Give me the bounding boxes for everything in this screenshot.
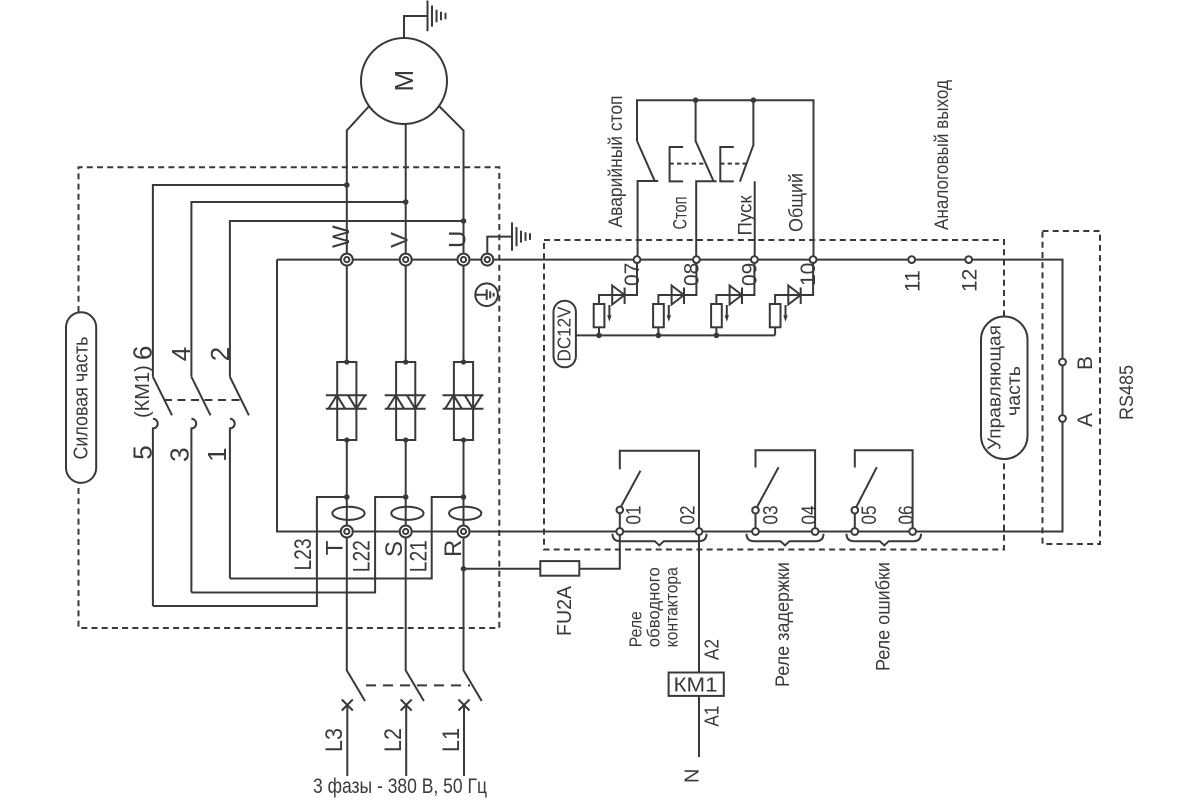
svg-text:V: V: [387, 232, 414, 248]
svg-text:U: U: [445, 231, 472, 248]
svg-text:01: 01: [623, 506, 646, 525]
svg-text:6: 6: [128, 346, 158, 360]
svg-text:L2: L2: [380, 728, 407, 752]
svg-text:10: 10: [797, 263, 820, 286]
svg-text:3 фазы - 380 В, 50 Гц: 3 фазы - 380 В, 50 Гц: [313, 775, 487, 798]
svg-text:L3: L3: [321, 728, 348, 752]
svg-text:RS485: RS485: [1117, 365, 1138, 420]
svg-text:12: 12: [959, 269, 982, 292]
svg-text:04: 04: [798, 505, 821, 524]
svg-text:Общий: Общий: [787, 173, 808, 232]
svg-text:05: 05: [858, 506, 881, 525]
svg-text:1: 1: [202, 447, 232, 461]
svg-text:3: 3: [165, 447, 195, 461]
svg-text:03: 03: [760, 506, 783, 525]
svg-text:07: 07: [621, 263, 644, 286]
svg-text:09: 09: [738, 263, 761, 286]
svg-text:2: 2: [205, 347, 235, 361]
svg-text:(КМ1): (КМ1): [132, 365, 154, 418]
svg-text:Пуск: Пуск: [736, 195, 757, 236]
svg-text:W: W: [328, 225, 355, 248]
svg-text:часть: часть: [1004, 366, 1025, 416]
svg-text:Аналоговый выход: Аналоговый выход: [932, 80, 953, 230]
svg-text:T: T: [322, 540, 349, 555]
svg-text:08: 08: [680, 263, 703, 286]
svg-text:Стоп: Стоп: [671, 197, 692, 230]
svg-text:L1: L1: [438, 728, 465, 752]
svg-text:Реле задержки: Реле задержки: [772, 562, 794, 687]
svg-text:M: M: [389, 70, 419, 92]
svg-text:A2: A2: [701, 639, 723, 660]
svg-text:L23: L23: [290, 539, 317, 571]
svg-text:L21: L21: [406, 540, 433, 572]
svg-text:A1: A1: [701, 706, 723, 727]
svg-text:4: 4: [166, 347, 196, 361]
svg-text:FU2A: FU2A: [554, 585, 576, 636]
svg-text:B: B: [1074, 356, 1097, 370]
svg-text:N: N: [682, 769, 704, 783]
svg-text:Реле ошибки: Реле ошибки: [873, 562, 895, 671]
svg-text:контактора: контактора: [662, 567, 682, 647]
svg-text:Управляющая: Управляющая: [985, 325, 1005, 450]
svg-text:КМ1: КМ1: [674, 675, 718, 697]
svg-text:L22: L22: [349, 540, 376, 572]
svg-text:Реле: Реле: [626, 611, 646, 647]
svg-text:S: S: [381, 541, 408, 557]
svg-text:DC12V: DC12V: [555, 307, 575, 362]
svg-text:02: 02: [677, 506, 700, 525]
svg-text:обводного: обводного: [644, 567, 664, 647]
svg-text:11: 11: [902, 270, 925, 292]
svg-text:A: A: [1074, 413, 1097, 427]
svg-text:Силовая часть: Силовая часть: [71, 337, 93, 460]
svg-text:5: 5: [128, 445, 158, 459]
svg-text:06: 06: [895, 506, 918, 525]
svg-text:Аварийный стоп: Аварийный стоп: [606, 96, 627, 228]
